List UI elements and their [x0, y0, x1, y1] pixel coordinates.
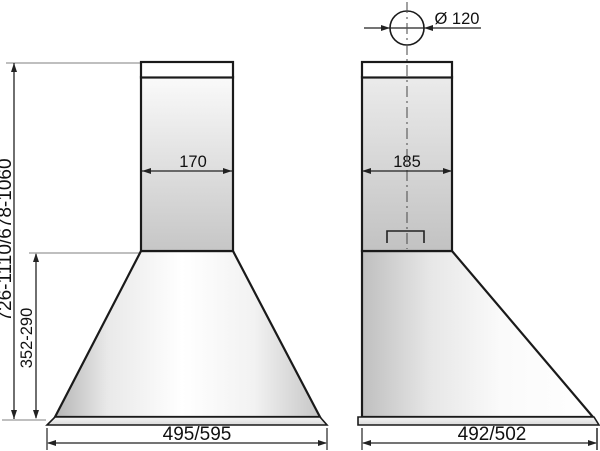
range-hood-dimension-drawing: 170 726-1110/678-1060 352-290 495/595: [0, 0, 600, 451]
base-width-label: 495/595: [163, 424, 232, 445]
duct-diameter-label: Ø 120: [435, 10, 480, 28]
overall-height-label: 726-1110/678-1060: [0, 158, 16, 321]
base-depth-label: 492/502: [458, 424, 527, 445]
chimney-width-label: 170: [179, 153, 207, 171]
front-chimney-cap: [141, 62, 233, 78]
chimney-depth-label: 185: [393, 153, 421, 171]
dimension-drawing-page: 170 726-1110/678-1060 352-290 495/595: [0, 0, 600, 451]
hood-height-label: 352-290: [18, 308, 36, 369]
